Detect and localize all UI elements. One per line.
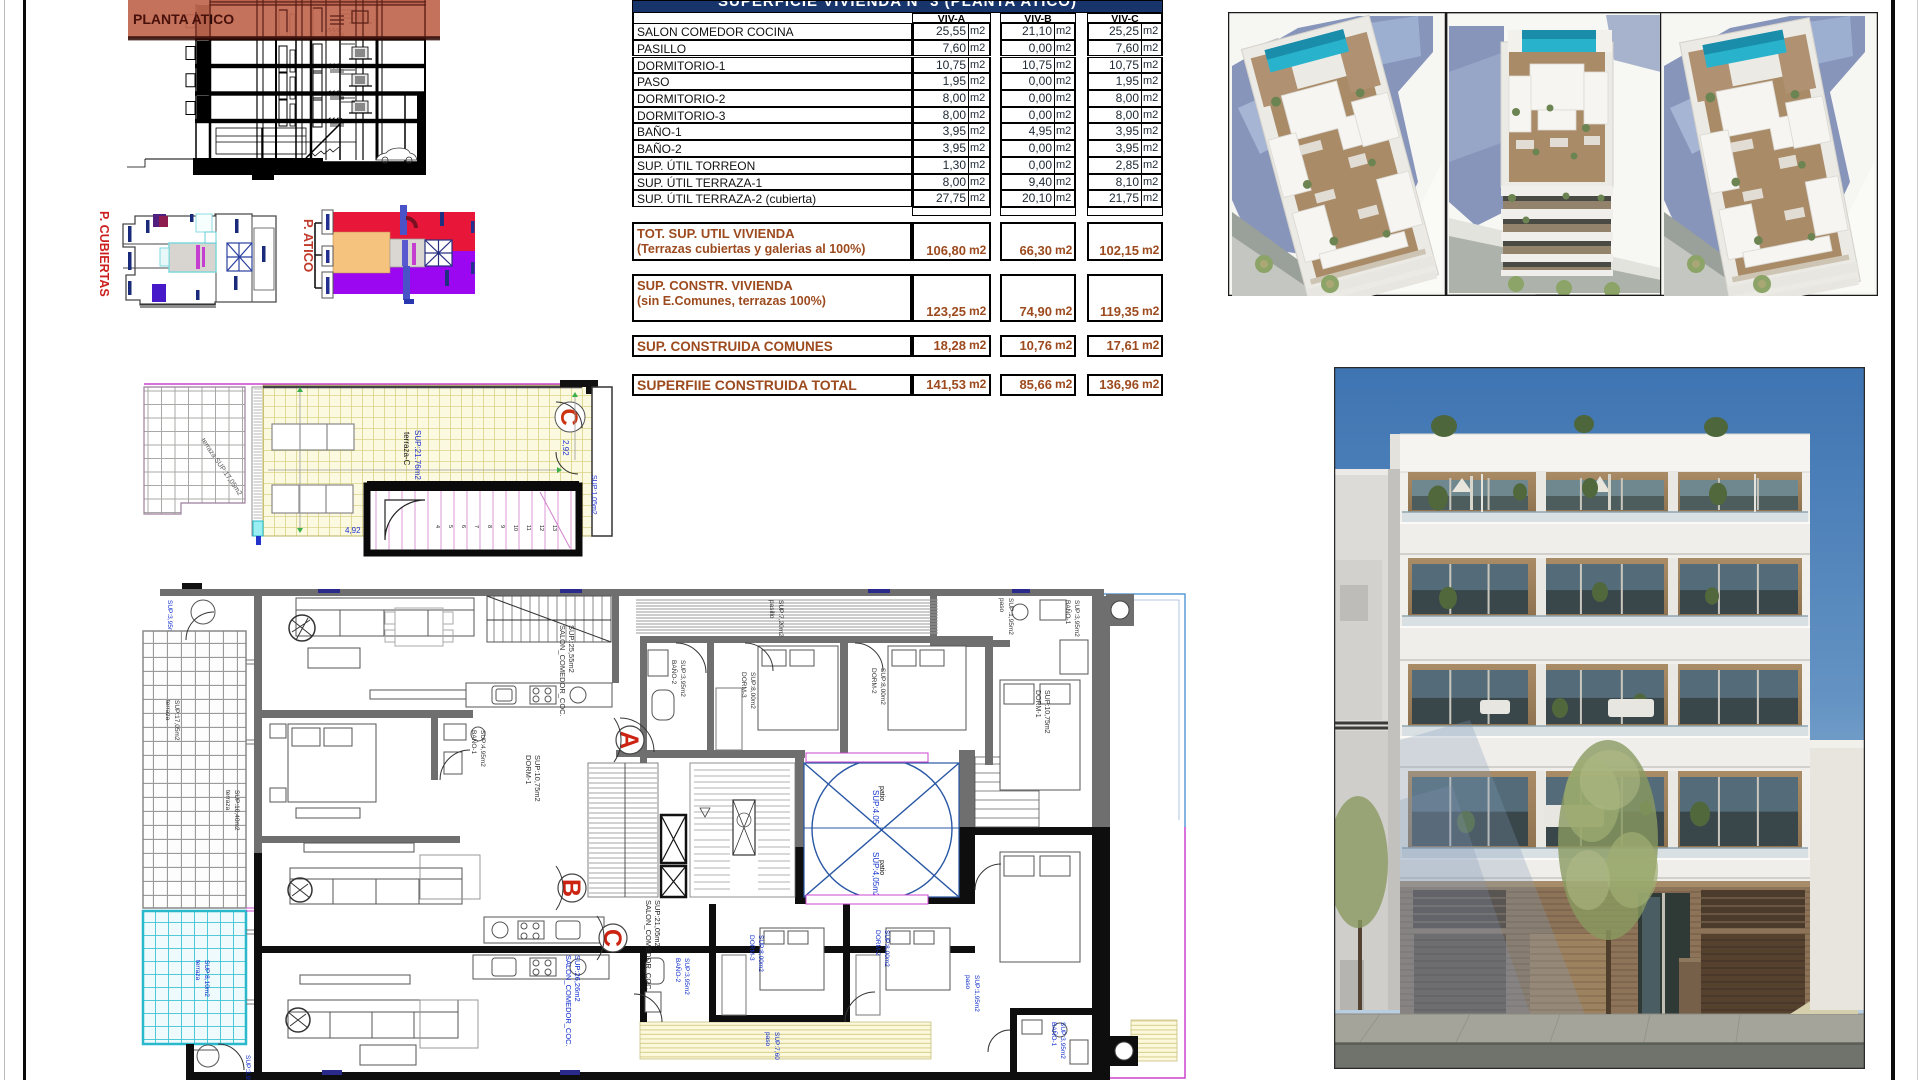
svg-text:SUP.:25,55m2: SUP.:25,55m2 <box>567 625 576 673</box>
svg-text:pasillo: pasillo <box>768 600 775 619</box>
svg-text:SUP:3,95: SUP:3,95 <box>244 1055 251 1080</box>
svg-text:4: 4 <box>434 525 440 528</box>
svg-text:BAÑO-2: BAÑO-2 <box>670 660 679 685</box>
svg-text:SUP:3,95m2: SUP:3,95m2 <box>683 958 690 995</box>
svg-text:C: C <box>598 929 626 947</box>
svg-text:SUP:10,40m2: SUP:10,40m2 <box>233 790 240 831</box>
svg-text:BAÑO-1: BAÑO-1 <box>1050 1022 1059 1047</box>
svg-text:SUP:21.76m2: SUP:21.76m2 <box>413 430 422 480</box>
svg-text:SUP:8,10m2: SUP:8,10m2 <box>203 960 210 997</box>
svg-text:SALON_COMEDOR_COC.: SALON_COMEDOR_COC. <box>644 900 653 992</box>
svg-text:terraza: terraza <box>164 700 171 721</box>
svg-text:BAÑO-1: BAÑO-1 <box>470 730 479 755</box>
svg-text:11: 11 <box>525 525 531 531</box>
svg-text:paso: paso <box>764 1032 771 1046</box>
svg-text:SUP:3,95m2: SUP:3,95m2 <box>1073 600 1080 637</box>
svg-text:BAÑO-1: BAÑO-1 <box>1064 600 1073 625</box>
svg-text:13: 13 <box>551 525 557 531</box>
svg-text:DORM-3: DORM-3 <box>740 672 747 698</box>
svg-text:SUP:8,00m2: SUP:8,00m2 <box>749 672 756 709</box>
svg-text:B: B <box>557 879 585 897</box>
svg-text:SUP:4,95m2: SUP:4,95m2 <box>479 730 486 767</box>
svg-text:2,92: 2,92 <box>561 440 570 456</box>
svg-text:SUP:21,05m2: SUP:21,05m2 <box>653 900 662 947</box>
svg-text:SUP:8,00m2: SUP:8,00m2 <box>757 935 764 972</box>
svg-text:SUP:10,75m2: SUP:10,75m2 <box>533 755 542 802</box>
svg-text:6: 6 <box>460 525 466 528</box>
svg-text:SUP:8,00m2: SUP:8,00m2 <box>879 668 886 705</box>
svg-text:terraza: terraza <box>224 790 231 811</box>
svg-text:SUP:17,05m2: SUP:17,05m2 <box>173 700 180 741</box>
svg-text:SUP:1,95m2: SUP:1,95m2 <box>973 975 980 1012</box>
svg-text:7: 7 <box>473 525 479 528</box>
svg-text:SALON_COMEDOR_COC.: SALON_COMEDOR_COC. <box>558 625 567 717</box>
svg-text:8: 8 <box>486 525 492 528</box>
svg-text:patio: patio <box>878 786 885 801</box>
svg-text:DORM-2: DORM-2 <box>874 930 881 956</box>
svg-text:P. ATICO: P. ATICO <box>301 219 316 272</box>
svg-text:5: 5 <box>447 525 453 528</box>
svg-text:9: 9 <box>499 525 505 528</box>
svg-text:BAÑO-2: BAÑO-2 <box>674 958 683 983</box>
svg-text:PLANTA ATICO: PLANTA ATICO <box>133 11 234 27</box>
svg-text:4,92: 4,92 <box>345 526 361 535</box>
svg-text:SUP:3,95m2: SUP:3,95m2 <box>1059 1022 1066 1059</box>
svg-text:DORM-2: DORM-2 <box>870 668 877 694</box>
svg-text:DORM-1: DORM-1 <box>524 755 533 785</box>
svg-text:terraza-C: terraza-C <box>402 432 411 466</box>
svg-text:SALON_COMEDOR_COC.: SALON_COMEDOR_COC. <box>564 955 573 1047</box>
svg-text:SUP:7,60: SUP:7,60 <box>773 1032 780 1060</box>
svg-text:C: C <box>555 408 582 425</box>
svg-text:SUP:10,75m2: SUP:10,75m2 <box>1043 690 1050 734</box>
svg-text:paso: paso <box>998 598 1005 612</box>
svg-text:terraza: terraza <box>194 960 201 981</box>
svg-text:SUP:3,95m2: SUP:3,95m2 <box>679 660 686 697</box>
svg-text:SUP:8,00m2: SUP:8,00m2 <box>883 930 890 967</box>
svg-text:DORM-1: DORM-1 <box>1034 690 1041 718</box>
svg-text:P. CUBIERTAS: P. CUBIERTAS <box>97 211 111 297</box>
svg-text:paso: paso <box>964 975 971 989</box>
svg-text:SUP:1,05m2: SUP:1,05m2 <box>590 475 597 515</box>
svg-text:SUP:26,26m2: SUP:26,26m2 <box>573 955 582 1002</box>
svg-text:patio: patio <box>878 860 885 875</box>
svg-text:A: A <box>615 731 643 749</box>
svg-text:10: 10 <box>512 525 518 531</box>
svg-text:12: 12 <box>538 525 544 531</box>
svg-text:SUP:1,95m2: SUP:1,95m2 <box>1007 598 1014 635</box>
svg-text:SUP:7,20m2: SUP:7,20m2 <box>777 600 784 637</box>
svg-text:DORM-3: DORM-3 <box>748 935 755 961</box>
